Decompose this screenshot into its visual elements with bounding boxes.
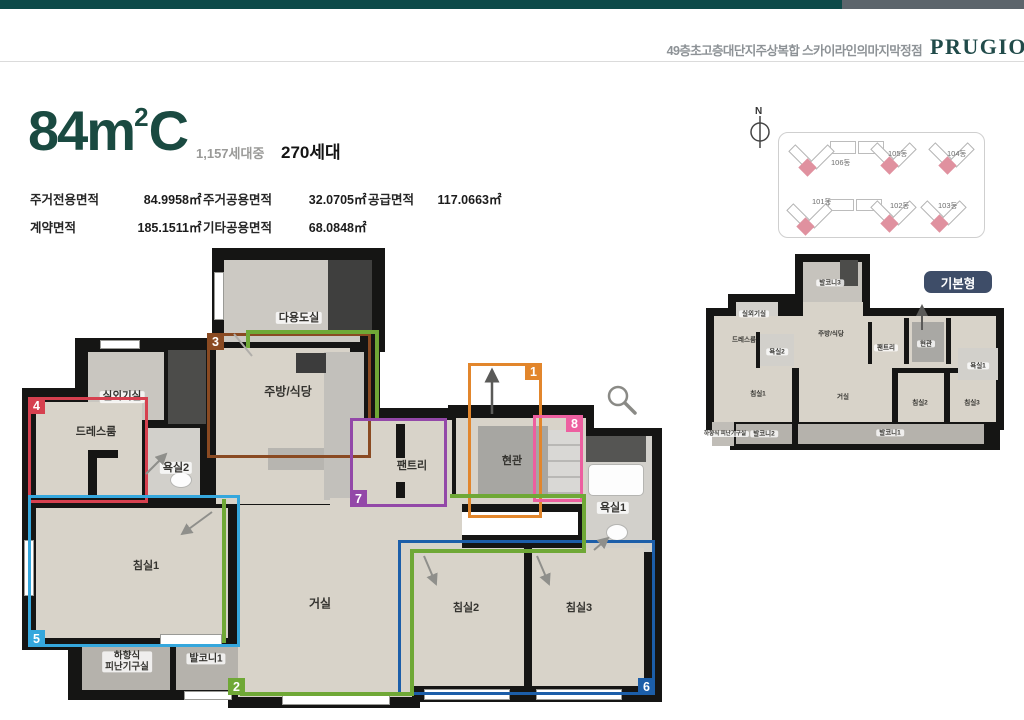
area-label: 계약면적 — [30, 217, 130, 236]
room-label-bathroom1: 욕실1 — [597, 502, 629, 514]
area-value: 185.1511㎡ — [133, 217, 201, 236]
mini-room-label: 드레스룸 — [732, 336, 756, 343]
room-label-balcony1: 발코니1 — [186, 653, 225, 664]
marker-box-3: 3 — [207, 333, 371, 458]
window — [100, 340, 140, 349]
marker-box-1: 1 — [468, 363, 542, 518]
unit-title-type: C — [149, 99, 188, 162]
mini-room-label: 침실2 — [912, 399, 928, 406]
header-divider — [0, 61, 1024, 62]
mini-room-label: 현관 — [917, 340, 935, 347]
top-bar-teal — [0, 0, 842, 9]
window — [214, 272, 224, 320]
building-label-101: 101동 — [812, 196, 831, 207]
marker-box-6: 6 — [398, 540, 655, 695]
mini-room-label: 거실 — [837, 393, 849, 400]
marker-num-3: 3 — [207, 333, 224, 350]
area-value: 84.9958㎡ — [133, 189, 201, 208]
toilet — [170, 472, 192, 488]
area-value: 32.0705㎡ — [302, 189, 366, 208]
marker-num-5: 5 — [28, 630, 45, 647]
units-count: 270세대 — [281, 138, 341, 163]
top-bar-gray — [842, 0, 1024, 9]
wall-segment — [868, 322, 872, 364]
area-cell: 공급면적 117.0663㎡ — [368, 189, 501, 208]
mini-room-label: 실외기실 — [739, 310, 769, 317]
mini-room-label: 욕실1 — [967, 362, 989, 369]
mini-room-label: 발코니2 — [750, 430, 778, 437]
closet-area — [586, 436, 646, 462]
marker-num-1: 1 — [525, 363, 542, 380]
marker-box-5: 5 — [28, 495, 240, 647]
mini-plan: 발코니3 실외기실 드레스룸 욕실2 주방/식당 팬트리 현관 욕실1 침실1 … — [700, 252, 1010, 452]
area-value: 117.0663㎡ — [427, 189, 501, 208]
building-label-103: 103동 — [938, 200, 957, 211]
building-label-105: 105동 — [888, 148, 907, 159]
area-value: 68.0848㎡ — [302, 217, 366, 236]
area-label: 주거공용면적 — [203, 189, 299, 208]
marker-num-8: 8 — [566, 415, 583, 432]
wall-segment — [892, 372, 898, 422]
brand-logo: PRUGIO — [930, 34, 1024, 60]
wall-segment — [944, 372, 950, 422]
units-prefix: 1,157세대중 — [196, 143, 264, 162]
area-cell: 계약면적 185.1511㎡ — [30, 217, 201, 236]
marker-num-2: 2 — [228, 678, 245, 695]
mini-room-label: 욕실2 — [766, 348, 788, 355]
building-101 — [786, 201, 836, 241]
mini-room-label: 주방/식당 — [818, 330, 844, 337]
room-label-bathroom2: 욕실2 — [160, 462, 192, 474]
unit-title-sup: 2 — [134, 102, 148, 132]
mini-room-label: 침실3 — [964, 399, 980, 406]
unit-title-main: 84m — [28, 99, 134, 162]
area-label: 공급면적 — [368, 189, 424, 208]
mini-room-label: 발코니3 — [816, 279, 844, 286]
mini-room-label: 침실1 — [750, 390, 766, 397]
wall-segment — [756, 332, 760, 368]
mini-room-label: 팬트리 — [874, 344, 898, 351]
mini-room-label: 발코니1 — [876, 429, 904, 436]
area-cell: 주거전용면적 84.9958㎡ — [30, 189, 201, 208]
room-label-living: 거실 — [309, 597, 331, 610]
duct-area — [168, 350, 206, 424]
page: 49층초고층대단지주상복합 스카이라인의마지막정점 PRUGIO 84m2C 1… — [0, 0, 1024, 720]
magnifier-icon[interactable] — [604, 384, 640, 420]
compass-label: N — [755, 106, 762, 117]
bathtub — [588, 464, 644, 496]
building-label-102: 102동 — [890, 200, 909, 211]
window — [282, 694, 390, 705]
wall-segment — [904, 318, 909, 364]
area-cell: 기타공용면적 68.0848㎡ — [203, 217, 366, 236]
wall-segment — [792, 368, 799, 422]
marker-num-4: 4 — [28, 397, 45, 414]
building-label-104: 104동 — [947, 148, 966, 159]
marker-box-4: 4 — [28, 397, 148, 503]
unit-title: 84m2C — [28, 98, 188, 162]
area-cell: 주거공용면적 32.0705㎡ — [203, 189, 366, 208]
building-105 — [870, 140, 920, 180]
toilet — [606, 524, 628, 541]
closet-area — [328, 260, 372, 332]
header-slogan: 49층초고층대단지주상복합 스카이라인의마지막정점 — [540, 40, 922, 59]
mini-room-label: 하향식 피난기구실 — [701, 431, 749, 437]
area-label: 기타공용면적 — [203, 217, 299, 236]
marker-num-6: 6 — [638, 678, 655, 695]
building-104 — [928, 140, 978, 180]
room-label-utility: 다용도실 — [276, 312, 322, 324]
building-label-106: 106동 — [831, 157, 850, 168]
area-label: 주거전용면적 — [30, 189, 130, 208]
marker-box-7: 7 — [350, 418, 447, 507]
wall-segment — [946, 318, 951, 364]
marker-num-7: 7 — [350, 490, 367, 507]
room-label-refuge: 하향식 피난기구실 — [102, 651, 152, 672]
window — [184, 691, 232, 700]
marker-box-8: 8 — [533, 415, 583, 502]
